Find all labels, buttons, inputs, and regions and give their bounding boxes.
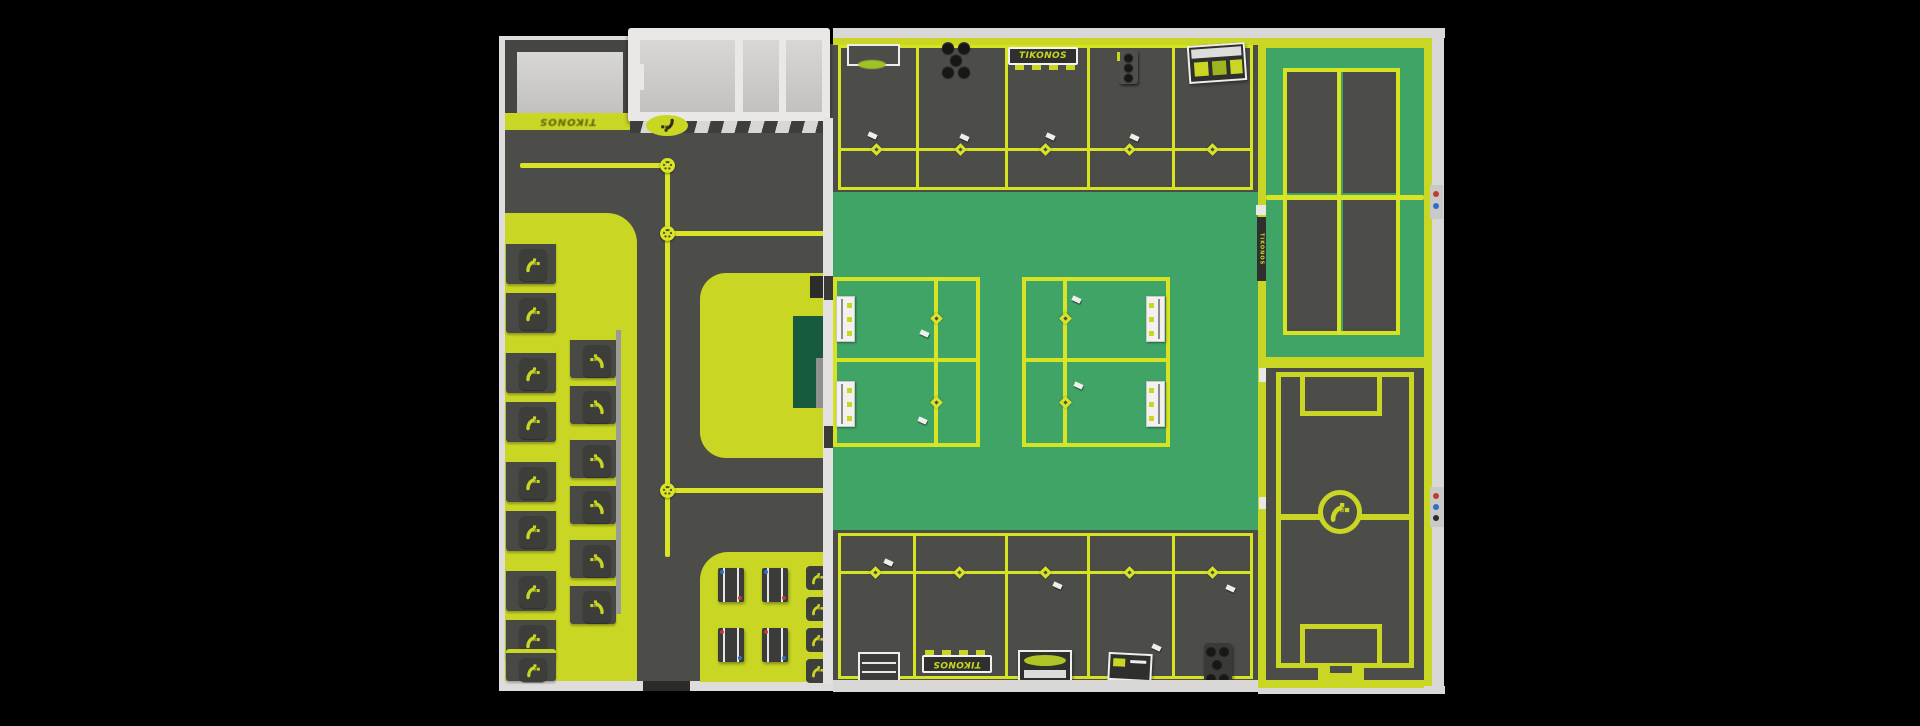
center-circle-logo-icon (1329, 501, 1351, 523)
padel-quadrant (1343, 72, 1396, 193)
bottom-wall-skin (833, 680, 1258, 692)
pot-cluster (940, 40, 976, 80)
court-net-line (1063, 277, 1067, 447)
wall-chip (1256, 205, 1266, 215)
stall-divider (1087, 533, 1090, 679)
locker-stall (570, 336, 616, 378)
right-right-wall (1424, 48, 1432, 686)
treadmill (718, 628, 744, 662)
path-line (520, 163, 669, 168)
court-bench (836, 296, 855, 342)
stall-divider (913, 533, 916, 679)
facility-floorplan-canvas: TIKONOS (0, 0, 1920, 726)
right-outer-skin (1432, 36, 1444, 692)
divider-wall-banner: TIKONOS (1257, 217, 1266, 281)
floor-logo-medallion (646, 115, 688, 136)
wall-mount-station (1430, 185, 1443, 219)
entrance-room-large (640, 40, 735, 112)
tikonos-sign-top: TIKONOS (1008, 47, 1078, 65)
entry-stripe: TIKONOS (505, 113, 630, 130)
stall-divider (1005, 533, 1008, 679)
top-wall-skin (833, 28, 1263, 38)
locker-stall (506, 349, 556, 393)
entrance-room-small-a (743, 40, 779, 112)
locker-stall (570, 536, 616, 578)
court-bench (1146, 381, 1165, 427)
stall-divider (1172, 45, 1175, 190)
pitch-goal-bottom (1318, 664, 1364, 680)
bottom-door-gap (643, 681, 690, 691)
path-node-icon (660, 158, 675, 173)
stall-divider (1172, 533, 1175, 679)
divider-wall-banner-label: TIKONOS (1259, 233, 1265, 265)
court-block-left (833, 277, 980, 447)
wall-mount-station (1430, 487, 1444, 527)
wall-door-slot (1259, 368, 1266, 382)
merch-crate (1187, 42, 1248, 84)
pitch-penalty-bottom (1300, 624, 1382, 668)
padel-center-line (1337, 68, 1341, 335)
treadmill (718, 568, 744, 602)
path-node-icon (660, 226, 675, 241)
pitch-penalty-top (1300, 372, 1382, 416)
tikonos-sign-top-label: TIKONOS (1019, 52, 1067, 61)
padel-net-line (1266, 195, 1424, 200)
wall-door-slot (1259, 497, 1266, 509)
table-goods (858, 60, 886, 69)
treadmill (762, 628, 788, 662)
padel-quadrant (1343, 200, 1396, 331)
entry-stripe-label: TIKONOS (539, 116, 596, 127)
skylight-panel (517, 52, 623, 113)
locker-stall (506, 458, 556, 502)
goods-crate (1018, 650, 1072, 683)
locker-stall (506, 398, 556, 442)
path-node-icon (660, 483, 675, 498)
locker-stall (570, 436, 616, 478)
court-net-line (934, 277, 938, 447)
treadmill (762, 568, 788, 602)
tikonos-sign-bottom-label: TIKONOS (933, 660, 981, 669)
wall-door (824, 276, 833, 300)
locker-stall (570, 482, 616, 524)
locker-stall (506, 567, 556, 611)
locker-stall (570, 382, 616, 424)
path-line (665, 165, 670, 557)
right-top-wall (1258, 38, 1432, 48)
entrance-door-notch (634, 64, 644, 90)
right-left-wall (1258, 38, 1266, 688)
tikonos-sign-bottom: TIKONOS (922, 655, 992, 673)
court-bench (1146, 296, 1165, 342)
locker-stall (506, 649, 556, 681)
locker-divider-rail (616, 330, 621, 614)
court-mid-line (1022, 358, 1170, 362)
right-bottom-wall (1266, 680, 1424, 688)
entrance-room-small-b (786, 40, 822, 112)
stall-divider (1087, 45, 1090, 190)
locker-stall (506, 507, 556, 551)
right-top-skin (1263, 28, 1445, 38)
pole-stand (1119, 50, 1138, 84)
court-bench (836, 381, 855, 427)
padel-quadrant (1287, 72, 1337, 193)
locker-stall (506, 240, 556, 284)
stall-divider (916, 45, 919, 190)
padel-quadrant (1287, 200, 1337, 331)
tray-stand (1107, 652, 1152, 682)
locker-stall (506, 289, 556, 333)
slat-bench (858, 652, 900, 682)
wall-door (824, 426, 833, 448)
locker-stall (570, 582, 616, 624)
pitch-center-circle (1318, 490, 1362, 534)
court-mid-line (833, 358, 980, 362)
stall-divider (1005, 45, 1008, 190)
